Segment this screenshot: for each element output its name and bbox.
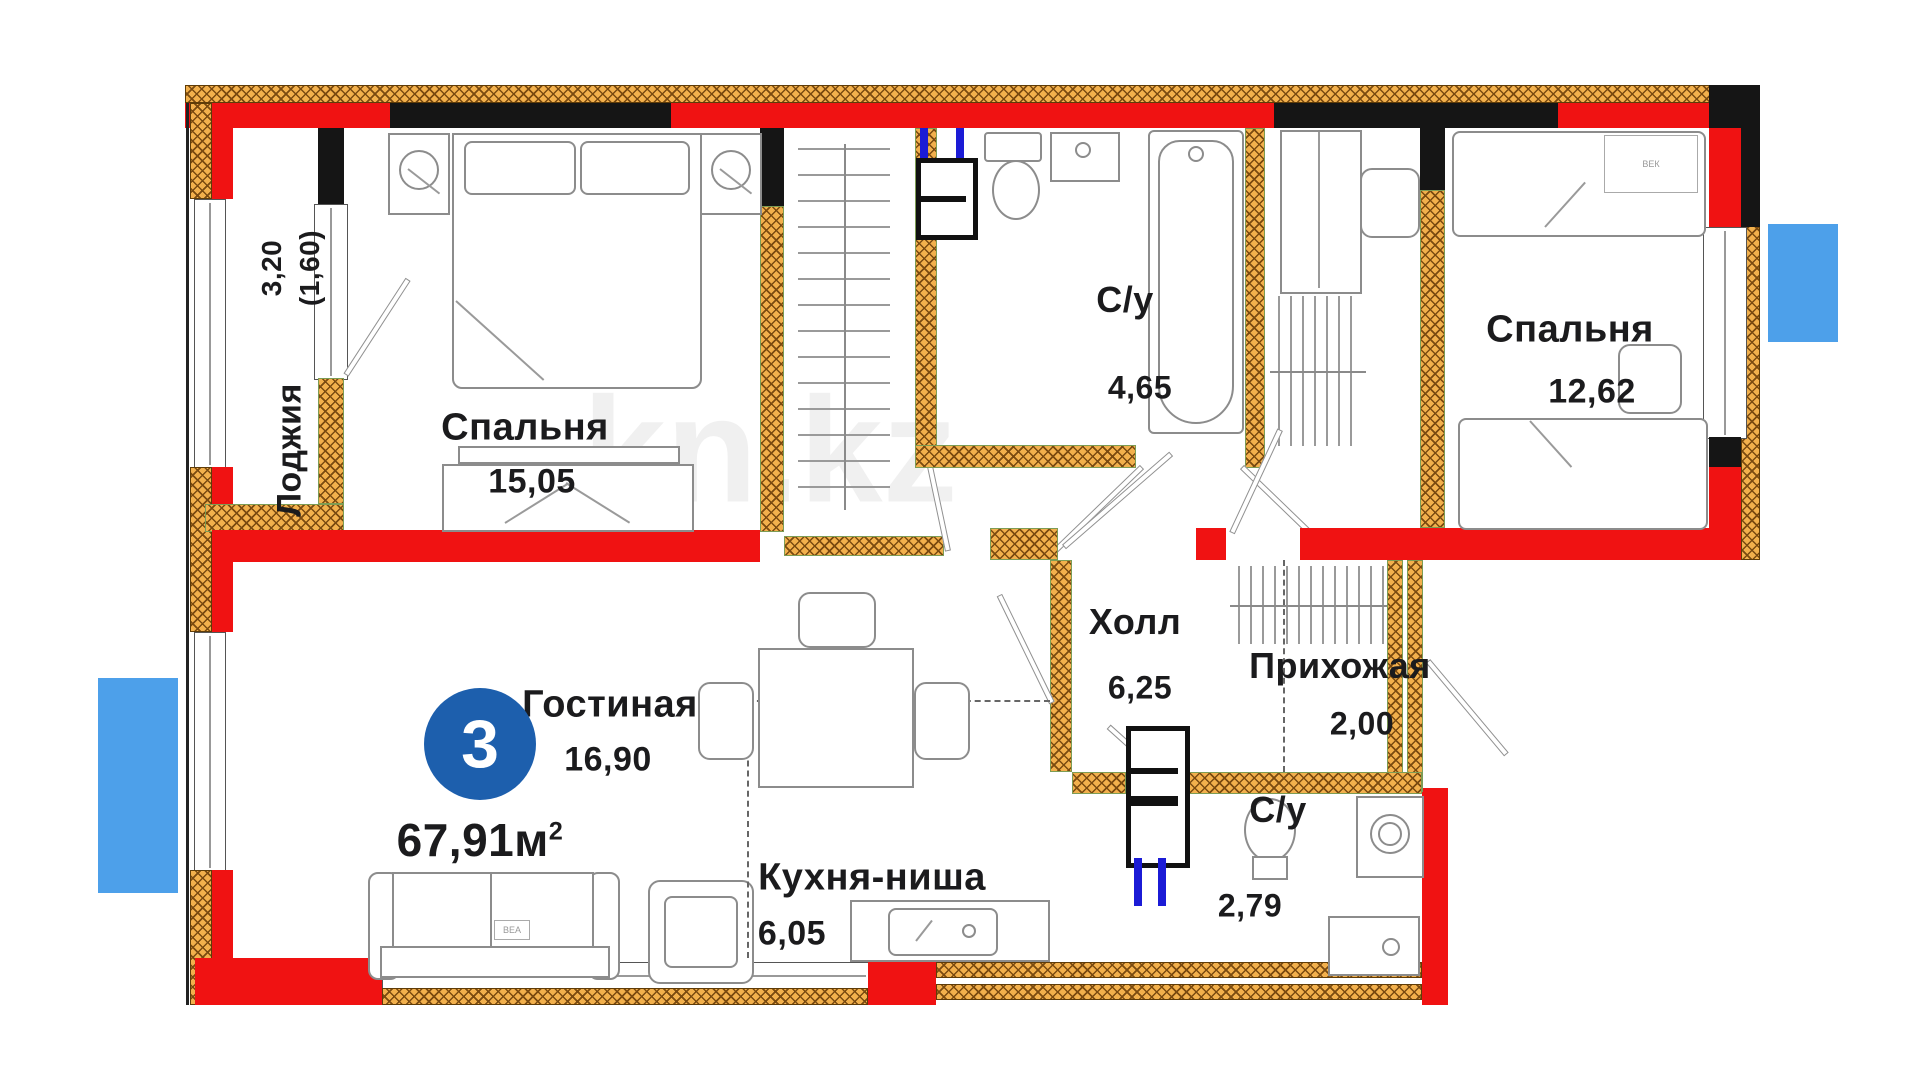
vent-shaft-1-divider <box>918 196 966 202</box>
entry-label: Прихожая <box>1249 645 1431 687</box>
wall-bottom-red-1 <box>195 958 382 1005</box>
wall-left-hatch-1 <box>190 103 212 199</box>
armchair-seat <box>664 896 738 968</box>
door-loggia-leaf <box>343 278 410 377</box>
riser-pipe-2 <box>956 128 964 162</box>
vent-shaft-2-divider1 <box>1128 768 1178 774</box>
floor-plan-canvas: kn.kz 3,20 (1,60) Лоджия <box>0 0 1920 1080</box>
wall-kitchen-bath2-link <box>1072 772 1126 794</box>
living-area: 16,90 <box>564 741 652 780</box>
hall-area: 6,25 <box>1108 670 1172 707</box>
wall-bedroom2-south-hatch <box>990 528 1058 560</box>
sofa-seat-2 <box>490 872 594 952</box>
lamp-left-icon <box>399 150 439 190</box>
wall-bath1-east <box>1245 128 1265 468</box>
closet-cabinet-shelf <box>1318 132 1320 288</box>
closet-cabinet <box>1280 130 1362 294</box>
wall-hall-partition <box>784 536 944 556</box>
wall-left-hatch-2 <box>190 467 212 632</box>
sink1-drain <box>1075 142 1091 158</box>
dining-table <box>758 648 914 788</box>
wall-bedroom1-south <box>212 530 760 562</box>
entry-area: 2,00 <box>1330 706 1394 743</box>
sink2-drain <box>1382 938 1400 956</box>
bath1-area: 4,65 <box>1108 370 1172 407</box>
window-living-left <box>194 632 226 872</box>
wall-left-edge-line <box>186 103 189 1005</box>
bedroom1-area: 15,05 <box>488 463 576 502</box>
toilet1-tank <box>984 132 1042 162</box>
balcony-marker-right <box>1768 224 1838 342</box>
bedroom1-label: Спальня <box>441 407 609 450</box>
door-hall-leaf <box>997 594 1055 704</box>
balcony-marker-left <box>98 678 178 893</box>
sofa-back <box>380 946 610 978</box>
bath1-label: С/у <box>1096 279 1154 321</box>
washing-machine-drum-inner <box>1378 822 1402 846</box>
chair-left <box>698 682 754 760</box>
bathtub-faucet <box>1188 146 1204 162</box>
kitchen-area: 6,05 <box>758 915 826 954</box>
riser-pipe-4 <box>1158 858 1166 906</box>
riser-pipe-1 <box>920 128 928 162</box>
riser-pipe-3 <box>1134 858 1142 906</box>
wall-top-black-1 <box>390 103 671 128</box>
bed-single-bottom <box>1458 418 1708 530</box>
wall-right-red-1 <box>1709 128 1741 227</box>
living-label: Гостиная <box>522 684 698 727</box>
wardrobe-rail-bedroom1 <box>798 148 890 506</box>
wall-left-red-1 <box>212 103 233 199</box>
kitchen-sink-drain <box>962 924 976 938</box>
wall-loggia-divider-hatch <box>318 378 344 504</box>
toilet1-bowl <box>992 160 1040 220</box>
wall-hatch-top <box>185 85 1760 103</box>
chair-top <box>798 592 876 648</box>
sofa-tag: ВЕА <box>494 920 530 940</box>
kitchen-sink <box>888 908 998 956</box>
wardrobe-rail-entry <box>1238 566 1384 644</box>
total-area: 67,91м2 <box>397 813 564 867</box>
door-entrance-leaf <box>1426 659 1509 756</box>
window-bedroom2 <box>1703 227 1747 439</box>
loggia-label: Лоджия <box>271 383 310 517</box>
closet-side-table <box>1360 168 1420 238</box>
wall-bedroom1-east-black <box>760 128 784 206</box>
wall-niche-east-hatch <box>1420 190 1445 528</box>
bedroom2-label: Спальня <box>1486 309 1654 352</box>
wall-bottom-red-2 <box>868 958 936 1005</box>
bed-tag: ВЕК <box>1604 135 1698 193</box>
wall-loggia-divider-black <box>318 128 344 204</box>
bath2-label: С/у <box>1249 789 1307 831</box>
wall-right-black-cap <box>1709 437 1741 467</box>
pillow-2 <box>580 141 690 195</box>
kitchen-label: Кухня-ниша <box>758 857 986 900</box>
wall-bottom-hatch-3 <box>936 984 1422 1000</box>
wardrobe-rail-niche <box>1278 296 1358 446</box>
window-loggia-left <box>194 199 226 469</box>
wall-bedroom2-south-red1 <box>1196 528 1226 560</box>
bedroom2-area: 12,62 <box>1548 373 1636 412</box>
sofa-seat-1 <box>392 872 496 952</box>
toilet2-base <box>1252 856 1288 880</box>
lamp-right-icon <box>711 150 751 190</box>
pillow-1 <box>464 141 576 195</box>
wall-bedroom2-south-red2 <box>1300 528 1741 560</box>
wall-niche-east-black <box>1420 128 1445 190</box>
vent-shaft-2-divider2 <box>1128 796 1178 806</box>
hall-label: Холл <box>1089 601 1181 643</box>
wall-bath1-south <box>915 445 1136 468</box>
loggia-dim-2: (1,60) <box>294 230 326 306</box>
wall-bottom-hatch-1 <box>382 988 868 1005</box>
wall-east-red-lower <box>1422 788 1448 1005</box>
chair-right <box>914 682 970 760</box>
loggia-dim-1: 3,20 <box>256 240 288 297</box>
wall-hall-west <box>1050 560 1072 772</box>
room-count-badge: 3 <box>424 688 536 800</box>
wall-bedroom1-east-hatch <box>760 206 784 532</box>
room-count: 3 <box>461 705 499 783</box>
bath2-area: 2,79 <box>1218 888 1282 925</box>
sink2 <box>1328 916 1420 976</box>
wall-top-black-2 <box>1274 103 1558 128</box>
